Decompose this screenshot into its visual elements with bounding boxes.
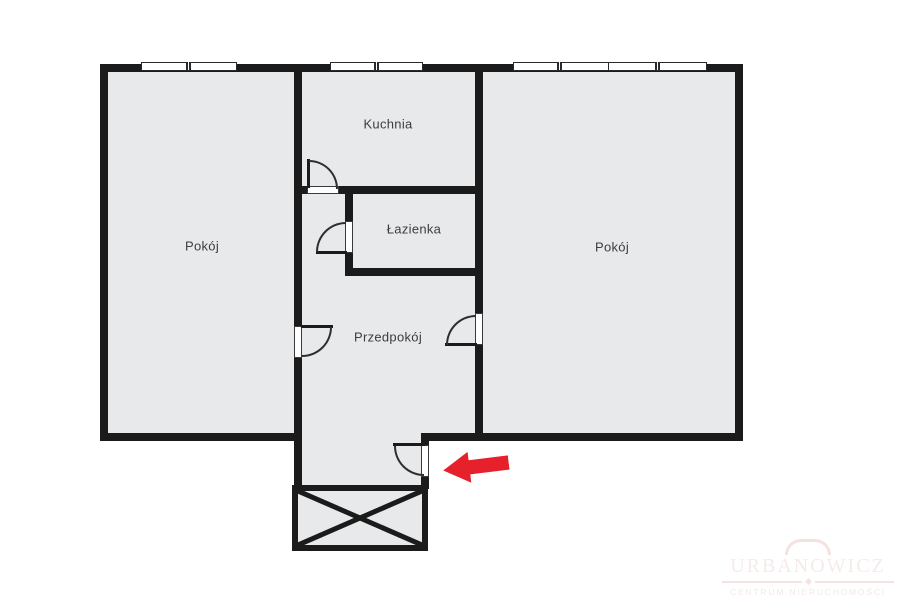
right-room-door-jamb (475, 313, 483, 345)
entrance-arrow-icon (441, 447, 510, 486)
room-label-pokoj-left: Pokój (185, 239, 219, 254)
window-right-room-1 (513, 62, 609, 71)
floor-plan: Pokój Kuchnia Łazienka Przedpokój Pokój … (0, 0, 900, 615)
wall-bottom-left-room (100, 433, 302, 441)
room-label-lazienka: Łazienka (387, 222, 441, 237)
balcony-cross (298, 491, 422, 545)
room-label-kuchnia: Kuchnia (363, 117, 412, 132)
window-mullion (655, 62, 660, 70)
wall-right (735, 64, 743, 441)
wall-left (100, 64, 108, 441)
window-mullion (186, 62, 191, 70)
watermark-divider-line (722, 581, 802, 583)
window-mullion (374, 62, 379, 70)
left-room-door-jamb (294, 326, 302, 358)
watermark-diamond-icon (804, 578, 811, 585)
watermark-arch-icon (785, 539, 831, 555)
watermark-divider (722, 579, 894, 584)
window-left-room (141, 62, 237, 71)
wall-bathroom-bottom (345, 268, 483, 276)
window-right-room-2 (608, 62, 707, 71)
wall-bottom-right (421, 433, 743, 441)
wall-mid-right (475, 64, 483, 441)
wall-mid-left (294, 64, 302, 488)
watermark-divider-line (815, 581, 895, 583)
room-label-przedpokoj: Przedpokój (354, 330, 422, 345)
balcony-box (292, 485, 428, 551)
watermark-subtitle: CENTRUM NIERUCHOMOŚCI (730, 587, 886, 597)
bathroom-door-jamb (345, 221, 353, 253)
room-label-pokoj-right: Pokój (595, 240, 629, 255)
watermark-title: URBANOWICZ (730, 556, 886, 576)
watermark: URBANOWICZ CENTRUM NIERUCHOMOŚCI (722, 539, 894, 597)
window-kitchen (330, 62, 423, 71)
window-mullion (557, 62, 562, 70)
